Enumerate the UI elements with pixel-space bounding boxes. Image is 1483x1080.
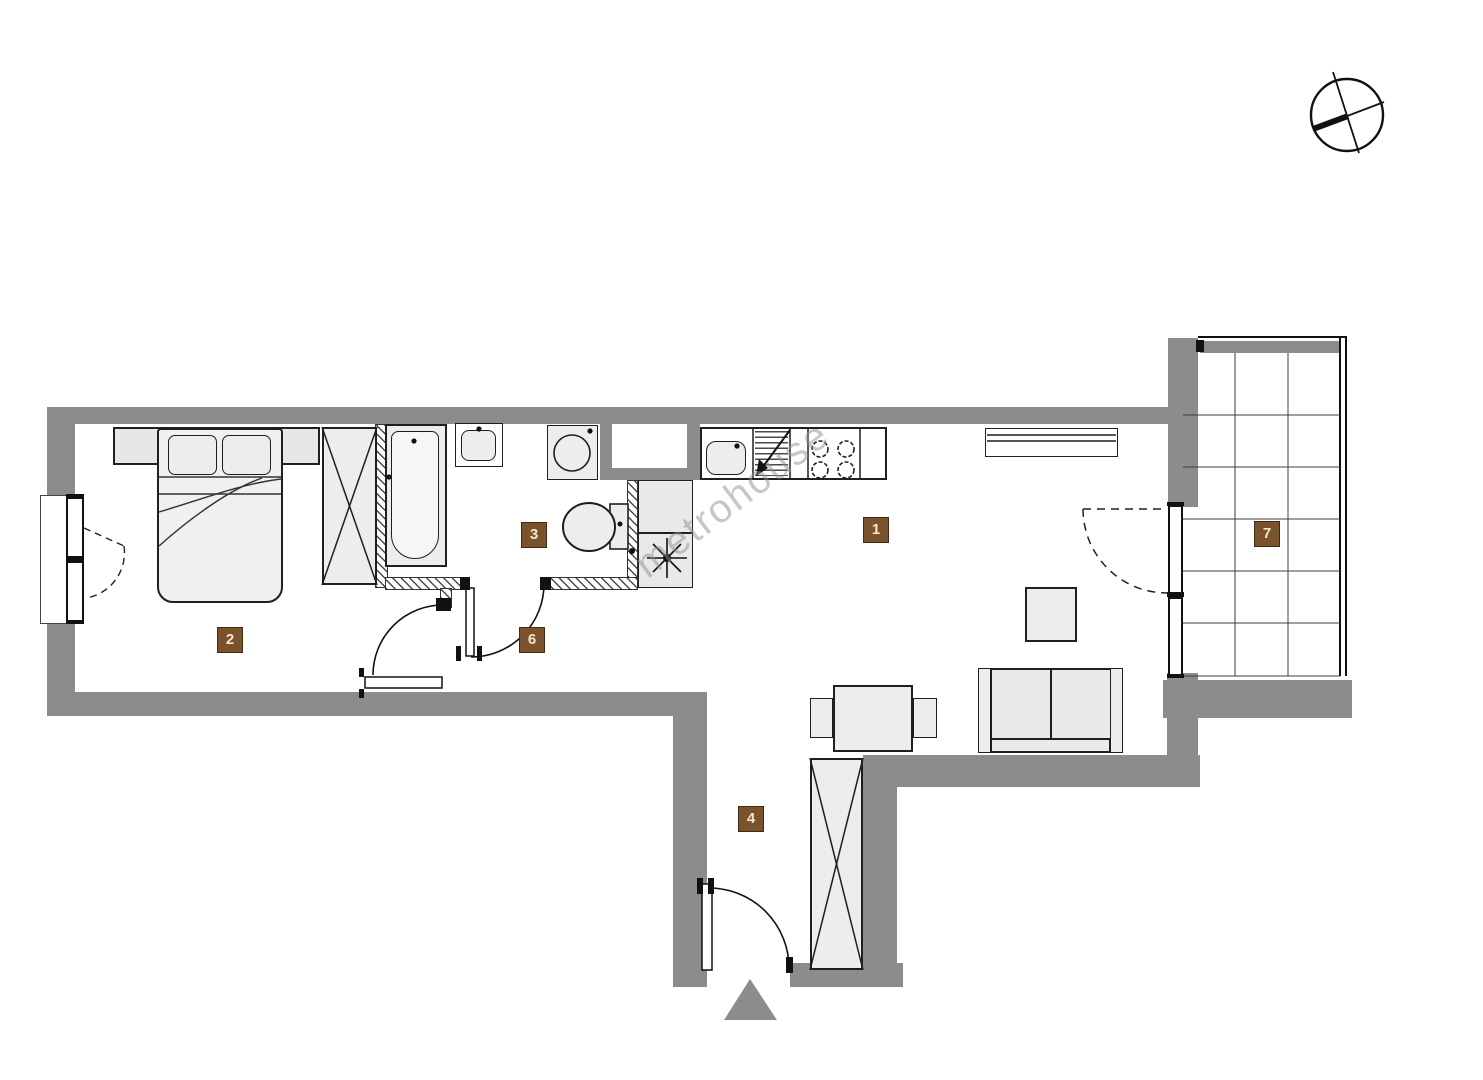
radiator-lines bbox=[987, 435, 1116, 441]
entrance-arrow-icon bbox=[724, 979, 777, 1020]
room-label-balcony: 7 bbox=[1254, 521, 1280, 547]
room-label-corridor: 6 bbox=[519, 627, 545, 653]
room-label-bathroom: 3 bbox=[521, 522, 547, 548]
door-icon bbox=[359, 598, 451, 698]
window-swing bbox=[84, 528, 124, 598]
balcony-tiles bbox=[1183, 353, 1340, 676]
tap-dots bbox=[386, 426, 739, 479]
washer-drum bbox=[554, 435, 590, 471]
room-label-bedroom: 2 bbox=[217, 627, 243, 653]
bed-linen bbox=[158, 477, 282, 546]
toilet-icon bbox=[563, 503, 635, 554]
balcony-railing bbox=[1198, 337, 1347, 676]
room-label-hall: 4 bbox=[738, 806, 764, 832]
floor-plan: metrohouse 1 2 3 4 6 7 bbox=[0, 0, 1483, 1080]
room-label-living: 1 bbox=[863, 517, 889, 543]
entrance-door-icon bbox=[697, 878, 793, 973]
railing-post bbox=[1196, 340, 1204, 352]
compass-icon bbox=[1311, 72, 1384, 153]
balcony-door-swing bbox=[1083, 509, 1167, 593]
